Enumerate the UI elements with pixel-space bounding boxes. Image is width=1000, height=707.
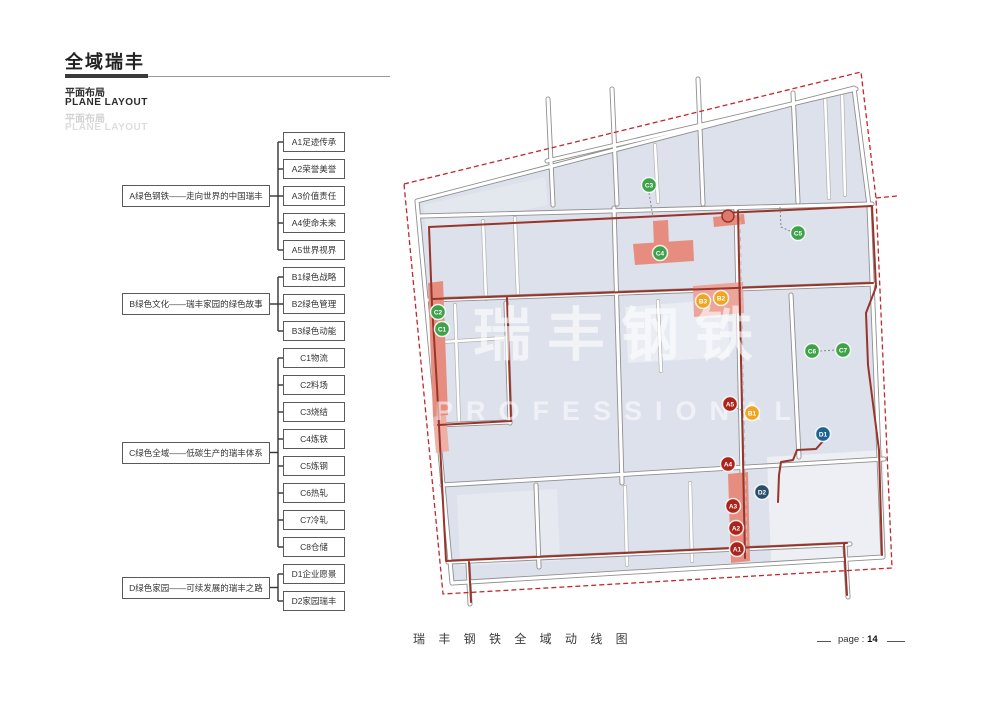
watermark-cn: 瑞丰钢铁: [473, 303, 769, 368]
page-number-value: 14: [867, 634, 878, 645]
svg-text:C6: C6: [808, 348, 817, 355]
map-marker-C2: C2: [431, 305, 446, 320]
map-marker-C5: C5: [791, 226, 806, 241]
svg-text:D2: D2: [758, 489, 767, 496]
site-map: 瑞丰钢铁 PROFESSIONAL C3C5C4C2C1C6C7B3B2B1A5…: [395, 55, 955, 625]
page-title: 全域瑞丰: [65, 48, 145, 74]
map-marker-C6: C6: [805, 344, 820, 359]
title-underline-thin: [148, 76, 390, 77]
svg-text:B2: B2: [717, 295, 726, 302]
tree-child-box: C7冷轧: [283, 510, 345, 530]
page-label-text: page :: [838, 634, 864, 645]
svg-text:C7: C7: [839, 347, 848, 354]
svg-text:C5: C5: [794, 230, 803, 237]
tree-child-box: A4使命未来: [283, 213, 345, 233]
subtitle-en-faded: PLANE LAYOUT: [65, 122, 148, 133]
map-caption: 瑞 丰 钢 铁 全 域 动 线 图: [413, 630, 633, 647]
tree-parent-box: B绿色文化——瑞丰家园的绿色故事: [122, 293, 270, 315]
tree-child-box: B2绿色管理: [283, 294, 345, 314]
map-marker-C3: C3: [642, 178, 657, 193]
tree-child-box: C1物流: [283, 348, 345, 368]
tree-child-box: A2荣誉美誉: [283, 159, 345, 179]
svg-text:A5: A5: [726, 401, 735, 408]
title-underline-thick: [65, 74, 148, 78]
svg-text:A3: A3: [729, 503, 738, 510]
svg-text:C2: C2: [434, 309, 443, 316]
subtitle-en: PLANE LAYOUT: [65, 97, 148, 108]
svg-text:A1: A1: [733, 546, 742, 553]
map-marker-C4: C4: [653, 246, 668, 261]
tree-parent-box: D绿色家园——可续发展的瑞丰之路: [122, 577, 270, 599]
svg-text:C3: C3: [645, 182, 654, 189]
map-marker-C7: C7: [836, 343, 851, 358]
map-marker-A1: A1: [730, 542, 745, 557]
svg-text:D1: D1: [819, 431, 828, 438]
tree-parent-box: C绿色全域——低碳生产的瑞丰体系: [122, 442, 270, 464]
map-marker-B3: B3: [696, 294, 711, 309]
tree-child-box: D2家园瑞丰: [283, 591, 345, 611]
map-marker-B2: B2: [714, 291, 729, 306]
tree-child-box: B1绿色战略: [283, 267, 345, 287]
map-marker-A2: A2: [729, 521, 744, 536]
tree-child-box: C3烧结: [283, 402, 345, 422]
svg-text:B3: B3: [699, 298, 708, 305]
map-marker-A5: A5: [723, 397, 738, 412]
map-marker-A3: A3: [726, 499, 741, 514]
tree-child-box: C8仓储: [283, 537, 345, 557]
svg-text:C1: C1: [438, 326, 447, 333]
map-marker-D2: D2: [755, 485, 770, 500]
slide-canvas: { "header": { "title": "全域瑞丰", "subtitle…: [0, 0, 1000, 707]
roundabout-node: [722, 210, 734, 222]
svg-text:B1: B1: [748, 410, 757, 417]
page-dash-left: [817, 641, 831, 642]
tree-child-box: B3绿色动能: [283, 321, 345, 341]
map-marker-A4: A4: [721, 457, 736, 472]
tree-child-box: C5炼钢: [283, 456, 345, 476]
svg-text:C4: C4: [656, 250, 665, 257]
tree-child-box: A5世界视界: [283, 240, 345, 260]
tree-child-box: A3价值责任: [283, 186, 345, 206]
tree-child-box: C4炼铁: [283, 429, 345, 449]
map-marker-B1: B1: [745, 406, 760, 421]
map-marker-D1: D1: [816, 427, 831, 442]
tree-parent-box: A绿色钢铁——走向世界的中国瑞丰: [122, 185, 270, 207]
page-number: page : 14: [838, 634, 878, 645]
tree-child-box: C6热轧: [283, 483, 345, 503]
tree-child-box: A1足迹传承: [283, 132, 345, 152]
svg-text:A4: A4: [724, 461, 733, 468]
map-marker-C1: C1: [435, 322, 450, 337]
tree-child-box: C2料场: [283, 375, 345, 395]
tree-child-box: D1企业愿景: [283, 564, 345, 584]
svg-text:A2: A2: [732, 525, 741, 532]
page-dash-right: [887, 641, 905, 642]
